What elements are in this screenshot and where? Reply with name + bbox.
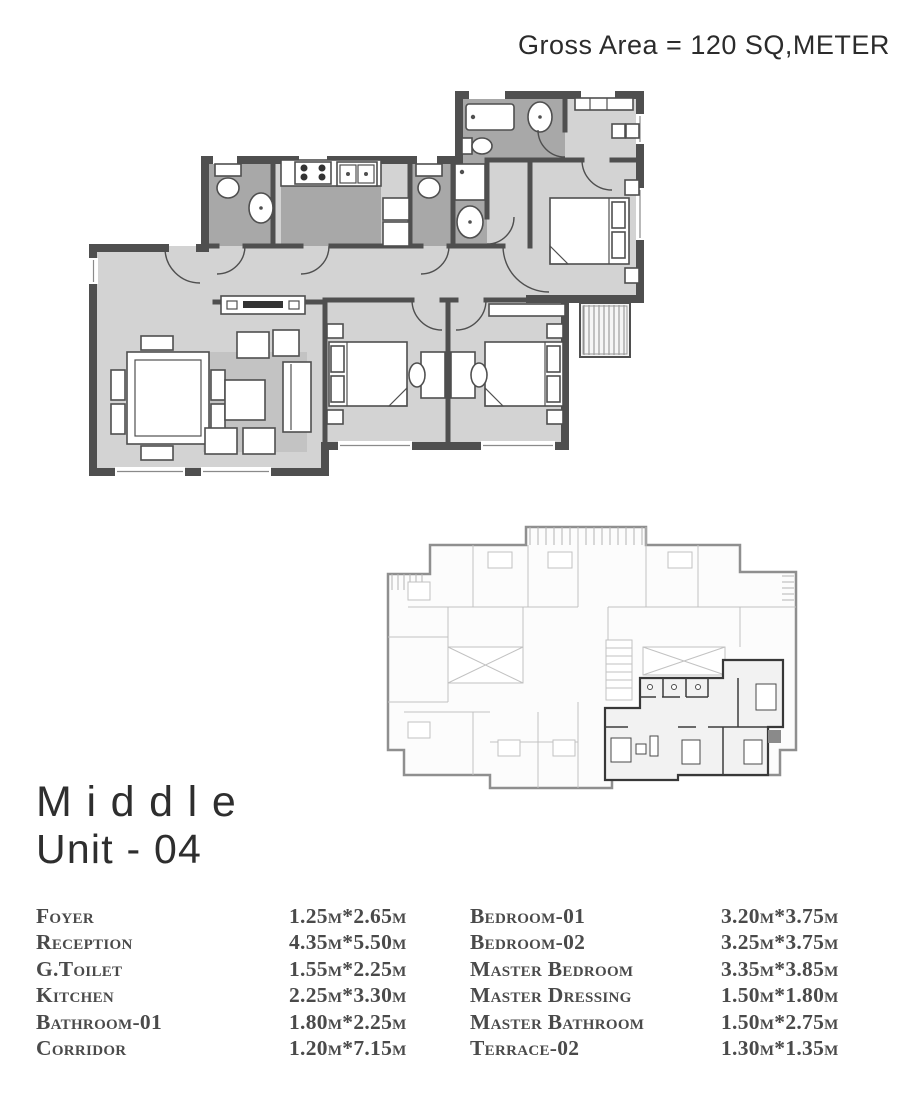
- room-size: 2.25m*3.30m: [289, 983, 470, 1008]
- room-name: Master Dressing: [470, 983, 721, 1008]
- nightstand: [547, 410, 563, 424]
- chair: [471, 363, 487, 387]
- dimensions-table: Foyer 1.25m*2.65m Bedroom-01 3.20m*3.75m…: [36, 903, 870, 1062]
- room-size: 1.20m*7.15m: [289, 1036, 470, 1061]
- chair: [409, 363, 425, 387]
- chair: [111, 404, 125, 434]
- pillow: [331, 346, 344, 372]
- room-size: 1.50m*2.75m: [721, 1010, 870, 1035]
- cabinet: [383, 222, 409, 246]
- main-floor-plan-drawing: [85, 80, 645, 485]
- room-size: 3.35m*3.85m: [721, 957, 870, 982]
- toilet-bowl-icon: [472, 138, 492, 154]
- toilet-bowl-icon: [217, 178, 239, 198]
- floor-plan-sheet: { "header": { "gross_area_label": "Gross…: [0, 0, 906, 1118]
- room-name: Foyer: [36, 904, 289, 929]
- mini-bed: [682, 740, 700, 764]
- room-size: 4.35m*5.50m: [289, 930, 470, 955]
- nightstand: [327, 410, 343, 424]
- coffee-table: [225, 380, 265, 420]
- pillow: [612, 232, 625, 258]
- armchair: [205, 428, 237, 454]
- pillow: [547, 376, 560, 402]
- shower-icon: [455, 164, 485, 200]
- chair: [211, 370, 225, 400]
- master-dressing-furniture: [575, 98, 633, 110]
- hall-cabinet: [489, 304, 565, 316]
- room-name: Reception: [36, 930, 289, 955]
- chair: [111, 370, 125, 400]
- room-size: 1.30m*1.35m: [721, 1036, 870, 1061]
- room-name: Kitchen: [36, 983, 289, 1008]
- pillow: [331, 376, 344, 402]
- closet: [612, 124, 625, 138]
- room-name: Master Bathroom: [470, 1010, 721, 1035]
- unit-title-line2: Unit - 04: [36, 826, 250, 873]
- armchair: [243, 428, 275, 454]
- mini-bed: [744, 740, 762, 764]
- terrace: [580, 303, 630, 357]
- tv-icon: [243, 301, 283, 308]
- armchair: [237, 332, 269, 358]
- room-size: 1.80m*2.25m: [289, 1010, 470, 1035]
- nightstand: [327, 324, 343, 338]
- room-name: Bathroom-01: [36, 1010, 289, 1035]
- sofa: [283, 362, 311, 432]
- key-plan: [378, 512, 808, 807]
- wardrobe: [575, 98, 633, 110]
- mini-bed: [756, 684, 776, 710]
- room-size: 1.55m*2.25m: [289, 957, 470, 982]
- unit-title: Middle Unit - 04: [36, 779, 250, 873]
- pillow: [612, 202, 625, 228]
- mini-terrace: [768, 730, 781, 743]
- dining-table: [127, 352, 209, 444]
- key-plan-drawing: [378, 512, 808, 807]
- closet: [626, 124, 639, 138]
- gross-area-label: Gross Area = 120 SQ,METER: [518, 30, 890, 61]
- chair: [141, 446, 173, 460]
- room-name: Corridor: [36, 1036, 289, 1061]
- main-floor-plan: [85, 80, 645, 485]
- room-name: G.Toilet: [36, 957, 289, 982]
- nightstand: [625, 268, 639, 283]
- nightstand: [625, 180, 639, 195]
- toilet-tank-icon: [416, 164, 442, 176]
- toilet-bowl-icon: [418, 178, 440, 198]
- room-size: 3.20m*3.75m: [721, 904, 870, 929]
- room-size: 3.25m*3.75m: [721, 930, 870, 955]
- pillow: [547, 346, 560, 372]
- mini-sofa: [650, 736, 658, 756]
- nightstand: [547, 324, 563, 338]
- room-name: Terrace-02: [470, 1036, 721, 1061]
- room-name: Master Bedroom: [470, 957, 721, 982]
- side-table: [273, 330, 299, 356]
- room-name: Bedroom-01: [470, 904, 721, 929]
- mini-dining-table: [611, 738, 631, 762]
- toilet-tank-icon: [215, 164, 241, 176]
- mini-coffee-table: [636, 744, 646, 754]
- chair: [141, 336, 173, 350]
- room-name: Bedroom-02: [470, 930, 721, 955]
- unit-title-line1: Middle: [36, 779, 250, 826]
- stove-icon: [295, 162, 331, 184]
- toilet-tank-icon: [462, 138, 472, 154]
- kitchen-sink-icon: [337, 162, 377, 186]
- fridge-icon: [383, 198, 409, 220]
- room-size: 1.25m*2.65m: [289, 904, 470, 929]
- room-size: 1.50m*1.80m: [721, 983, 870, 1008]
